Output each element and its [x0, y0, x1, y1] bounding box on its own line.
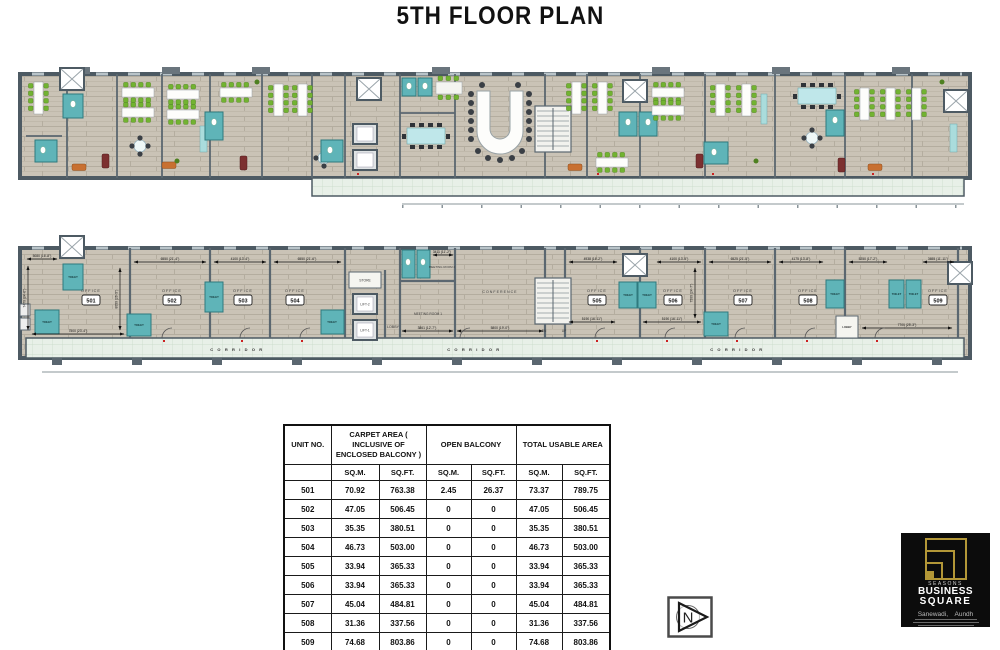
- svg-text:5800 (19'-0"): 5800 (19'-0"): [491, 326, 510, 330]
- svg-text:505: 505: [592, 299, 601, 305]
- logo-fineprint-line: [915, 619, 977, 621]
- svg-text:OFFICE: OFFICE: [798, 289, 818, 293]
- svg-text:5080 (16'-8"): 5080 (16'-8"): [33, 254, 52, 258]
- svg-text:504: 504: [290, 299, 300, 305]
- compass-north-letter: N: [683, 610, 694, 627]
- table-cell: 74.68: [331, 633, 379, 650]
- unit-504-label: OFFICE 504: [285, 289, 305, 305]
- north-compass-icon: N: [667, 596, 713, 638]
- table-cell: 503.00: [379, 538, 426, 557]
- svg-text:6550 (21'-6"): 6550 (21'-6"): [298, 257, 317, 261]
- lift-2-label: LIFT-2: [360, 303, 369, 307]
- staircase-icon: [535, 278, 571, 324]
- toilet-room: [205, 112, 223, 140]
- svg-text:6525 (21'-5"): 6525 (21'-5"): [731, 257, 750, 261]
- table-cell: 502: [284, 500, 331, 519]
- svg-text:5190 (16'-11"): 5190 (16'-11"): [582, 317, 602, 321]
- page-title-text: 5TH FLOOR PLAN: [396, 2, 604, 31]
- svg-text:TOILET: TOILET: [642, 293, 652, 297]
- furnished-floor-plan: [12, 66, 988, 223]
- svg-text:TOILET: TOILET: [327, 320, 337, 324]
- table-cell: 26.37: [471, 481, 516, 500]
- column-header: SQ.FT.: [471, 465, 516, 481]
- svg-text:5250 (17'-2"): 5250 (17'-2"): [859, 257, 878, 261]
- svg-text:OFFICE: OFFICE: [733, 289, 753, 293]
- table-cell: 0: [471, 500, 516, 519]
- unit-505-label: OFFICE 505: [587, 289, 607, 305]
- column-header: CARPET AREA ( INCLUSIVE OF ENCLOSED BALC…: [331, 425, 426, 465]
- table-cell: 0: [471, 538, 516, 557]
- dimensioned-floor-plan: STORE LIFT-2 LIFT-1 LOBBY MEETING ROOM 2…: [12, 234, 988, 391]
- svg-text:4100 (13'-4"): 4100 (13'-4"): [231, 257, 250, 261]
- svg-text:LOBBY: LOBBY: [842, 325, 852, 329]
- table-cell: 0: [471, 595, 516, 614]
- developer-logo: SEASONS BUSINESS SQUARE Sanewadi, Aundh: [901, 533, 990, 627]
- svg-text:OFFICE: OFFICE: [285, 289, 305, 293]
- svg-text:501: 501: [86, 299, 95, 305]
- table-cell: 33.94: [331, 576, 379, 595]
- svg-text:7500 (24'-7"): 7500 (24'-7"): [690, 284, 694, 303]
- table-cell: 47.05: [516, 500, 562, 519]
- table-cell: 0: [471, 633, 516, 650]
- svg-text:OFFICE: OFFICE: [81, 289, 101, 293]
- table-row: 501 70.92 763.38 2.45 26.37 73.37 789.75: [284, 481, 610, 500]
- table-cell: 501: [284, 481, 331, 500]
- table-cell: 0: [426, 576, 471, 595]
- floor-plan-sheet: 5TH FLOOR PLAN: [0, 0, 1000, 650]
- unit-509-label: OFFICE 509: [928, 289, 948, 305]
- table-cell: 45.04: [331, 595, 379, 614]
- table-cell: 0: [426, 595, 471, 614]
- table-cell: 2.45: [426, 481, 471, 500]
- svg-text:C O R R I D O R: C O R R I D O R: [447, 347, 501, 352]
- table-row: 505 33.94 365.33 0 0 33.94 365.33: [284, 557, 610, 576]
- toilet-room: [35, 140, 57, 162]
- table-cell: 484.81: [379, 595, 426, 614]
- stairs-up-label: UP: [562, 329, 566, 333]
- svg-text:TOILET: TOILET: [42, 320, 52, 324]
- table-cell: 506.45: [562, 500, 610, 519]
- logo-location: Sanewadi, Aundh: [918, 611, 974, 618]
- lift-1-icon: [353, 150, 377, 170]
- area-table: UNIT NO. CARPET AREA ( INCLUSIVE OF ENCL…: [283, 424, 611, 650]
- furnished-floor-plan-svg: [12, 66, 988, 218]
- table-cell: 365.33: [379, 557, 426, 576]
- table-cell: 35.35: [331, 519, 379, 538]
- table-cell: 509: [284, 633, 331, 650]
- column-header: SQ.M.: [331, 465, 379, 481]
- table-cell: 33.94: [516, 576, 562, 595]
- column-header: SQ.FT.: [379, 465, 426, 481]
- table-cell: 0: [471, 557, 516, 576]
- table-row: 508 31.36 337.56 0 0 31.36 337.56: [284, 614, 610, 633]
- logo-brand-bottom: SQUARE: [920, 597, 972, 608]
- table-cell: 74.68: [516, 633, 562, 650]
- svg-text:TOILET: TOILET: [711, 322, 721, 326]
- table-cell: 0: [426, 557, 471, 576]
- table-cell: 337.56: [379, 614, 426, 633]
- table-cell: 505: [284, 557, 331, 576]
- table-row: 504 46.73 503.00 0 0 46.73 503.00: [284, 538, 610, 557]
- svg-text:OFFICE: OFFICE: [233, 289, 253, 293]
- table-cell: 504: [284, 538, 331, 557]
- table-cell: 46.73: [516, 538, 562, 557]
- svg-text:7500 (23'-4"): 7500 (23'-4"): [69, 329, 88, 333]
- svg-text:507: 507: [738, 299, 747, 305]
- svg-text:3861 (12'-7"): 3861 (12'-7"): [418, 326, 437, 330]
- table-cell: 45.04: [516, 595, 562, 614]
- svg-text:4100 (13'-5"): 4100 (13'-5"): [670, 257, 689, 261]
- svg-text:TOILET: TOILET: [68, 275, 78, 279]
- svg-text:TOILET: TOILET: [134, 323, 144, 327]
- unit-506-label: OFFICE 506: [663, 289, 683, 305]
- nested-squares-logo-icon: [923, 538, 969, 580]
- svg-text:TOILET: TOILET: [830, 292, 840, 296]
- table-cell: 365.33: [562, 576, 610, 595]
- svg-text:502: 502: [167, 299, 176, 305]
- dimensioned-floor-plan-svg: STORE LIFT-2 LIFT-1 LOBBY MEETING ROOM 2…: [12, 234, 988, 386]
- table-cell: 73.37: [516, 481, 562, 500]
- lobby-label: LOBBY: [387, 325, 400, 329]
- svg-text:4938 (16'-2"): 4938 (16'-2"): [584, 257, 603, 261]
- table-cell: 503.00: [562, 538, 610, 557]
- table-cell: 0: [426, 633, 471, 650]
- svg-text:TOILET: TOILET: [623, 293, 633, 297]
- svg-text:3411 (11'-2"): 3411 (11'-2"): [433, 250, 451, 254]
- table-header-row: UNIT NO. CARPET AREA ( INCLUSIVE OF ENCL…: [284, 425, 610, 465]
- svg-text:OFFICE: OFFICE: [162, 289, 182, 293]
- meeting-room-1-label: MEETING ROOM 1: [414, 312, 442, 316]
- meeting-table: [436, 82, 462, 94]
- unit-507-label: OFFICE 507: [733, 289, 753, 305]
- logo-fineprint-line: [913, 622, 979, 624]
- table-cell: 506.45: [379, 500, 426, 519]
- svg-text:7700 (25'-3"): 7700 (25'-3"): [898, 323, 917, 327]
- table-cell: 508: [284, 614, 331, 633]
- table-cell: 0: [426, 500, 471, 519]
- svg-text:OFFICE: OFFICE: [663, 289, 683, 293]
- unit-508-label: OFFICE 508: [798, 289, 818, 305]
- svg-text:509: 509: [933, 299, 942, 305]
- table-cell: 33.94: [516, 557, 562, 576]
- table-cell: 35.35: [516, 519, 562, 538]
- conference-label: CONFERENCE: [482, 290, 517, 294]
- page-title: 5TH FLOOR PLAN: [0, 2, 1000, 31]
- table-cell: 380.51: [379, 519, 426, 538]
- table-cell: 70.92: [331, 481, 379, 500]
- staircase-icon: [535, 106, 571, 152]
- table-cell: 0: [426, 519, 471, 538]
- table-cell: 337.56: [562, 614, 610, 633]
- building-shell-lower: [20, 248, 970, 372]
- table-row: 502 47.05 506.45 0 0 47.05 506.45: [284, 500, 610, 519]
- unit-503-label: OFFICE 503: [233, 289, 253, 305]
- area-statement: UNIT NO. CARPET AREA ( INCLUSIVE OF ENCL…: [283, 424, 611, 650]
- table-cell: 380.51: [562, 519, 610, 538]
- table-cell: 365.33: [562, 557, 610, 576]
- table-cell: 506: [284, 576, 331, 595]
- table-cell: 47.05: [331, 500, 379, 519]
- table-cell: 0: [471, 614, 516, 633]
- svg-text:TOILET: TOILET: [909, 292, 919, 296]
- column-header: OPEN BALCONY: [426, 425, 516, 465]
- column-header: TOTAL USABLE AREA: [516, 425, 610, 465]
- table-cell: 0: [471, 576, 516, 595]
- table-cell: 31.36: [516, 614, 562, 633]
- column-header: [284, 465, 331, 481]
- table-row: 506 33.94 365.33 0 0 33.94 365.33: [284, 576, 610, 595]
- table-cell: 803.86: [379, 633, 426, 650]
- table-row: 503 35.35 380.51 0 0 35.35 380.51: [284, 519, 610, 538]
- lift-1-label: LIFT-1: [360, 329, 369, 333]
- svg-text:6550 (21'-4"): 6550 (21'-4"): [161, 257, 180, 261]
- svg-text:TOILET: TOILET: [892, 292, 902, 296]
- table-cell: 31.36: [331, 614, 379, 633]
- elevator-shaft-icon: [357, 78, 381, 100]
- unit-501-label: OFFICE 501: [81, 289, 101, 305]
- table-cell: 46.73: [331, 538, 379, 557]
- svg-text:C O R R I D O R: C O R R I D O R: [210, 347, 264, 352]
- unit-502-label: OFFICE 502: [162, 289, 182, 305]
- table-cell: 789.75: [562, 481, 610, 500]
- logo-fineprint-line: [918, 625, 974, 627]
- lift-2-icon: [353, 124, 377, 144]
- north-compass: N: [667, 596, 713, 638]
- table-cell: 0: [426, 614, 471, 633]
- table-row: 507 45.04 484.81 0 0 45.04 484.81: [284, 595, 610, 614]
- table-cell: 33.94: [331, 557, 379, 576]
- table-cell: 0: [426, 538, 471, 557]
- svg-text:508: 508: [803, 299, 812, 305]
- table-cell: 803.86: [562, 633, 610, 650]
- table-cell: 503: [284, 519, 331, 538]
- column-header: SQ.M.: [516, 465, 562, 481]
- table-cell: 0: [471, 519, 516, 538]
- svg-text:OFFICE: OFFICE: [928, 289, 948, 293]
- svg-text:7470 (24'-6"): 7470 (24'-6"): [23, 289, 27, 308]
- svg-text:TOILET: TOILET: [209, 295, 219, 299]
- svg-text:3655 (11'-11"): 3655 (11'-11"): [928, 257, 948, 261]
- svg-text:5190 (16'-11"): 5190 (16'-11"): [662, 317, 682, 321]
- table-cell: 365.33: [379, 576, 426, 595]
- svg-text:C O R R I D O R: C O R R I D O R: [710, 347, 764, 352]
- table-cell: 763.38: [379, 481, 426, 500]
- meeting-room-2-label: MEETING ROOM 2: [429, 265, 456, 269]
- svg-text:506: 506: [668, 299, 677, 305]
- svg-text:4175 (13'-8"): 4175 (13'-8"): [792, 257, 811, 261]
- column-header: SQ.M.: [426, 465, 471, 481]
- svg-text:8050 (26'-5"): 8050 (26'-5"): [115, 290, 119, 309]
- table-cell: 507: [284, 595, 331, 614]
- table-cell: 484.81: [562, 595, 610, 614]
- svg-text:OFFICE: OFFICE: [587, 289, 607, 293]
- store-label: STORE: [359, 279, 371, 283]
- svg-text:503: 503: [238, 299, 247, 305]
- column-header: UNIT NO.: [284, 425, 331, 465]
- table-subheader-row: SQ.M. SQ.FT. SQ.M. SQ.FT. SQ.M. SQ.FT.: [284, 465, 610, 481]
- column-header: SQ.FT.: [562, 465, 610, 481]
- table-row: 509 74.68 803.86 0 0 74.68 803.86: [284, 633, 610, 650]
